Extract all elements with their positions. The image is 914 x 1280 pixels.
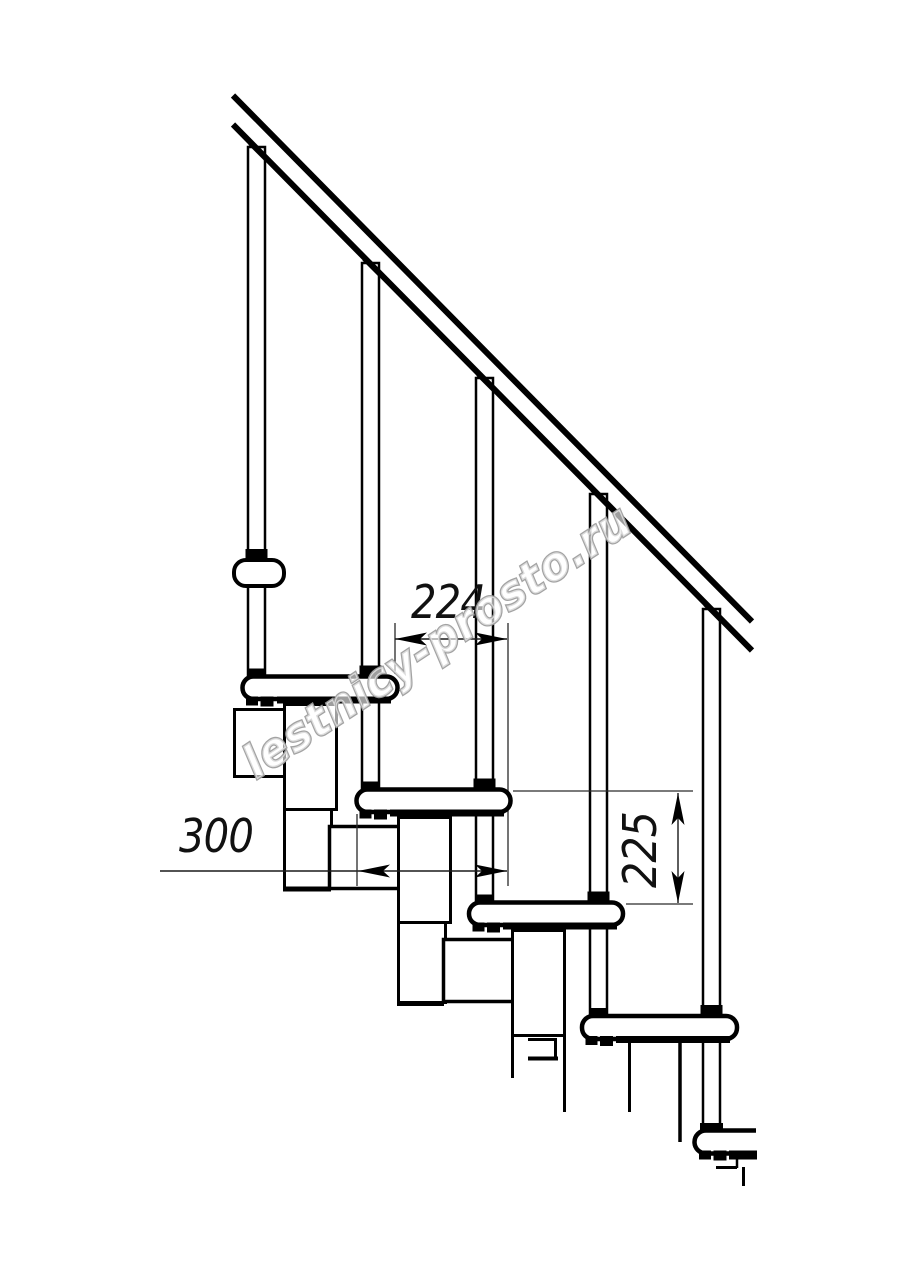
baluster-4-nut (588, 892, 610, 903)
module1-lower-box (285, 810, 332, 889)
watermark-text: lestnicy-prosto.ru (232, 493, 641, 789)
module2-connector-box (444, 940, 516, 1002)
tread-3-tab-b (487, 923, 500, 933)
tread-3 (469, 903, 623, 926)
staircase-drawing: 224 300 225 lestnicy-prosto.ru (0, 0, 914, 1280)
module2-lower-box (399, 923, 446, 1003)
tread-5-cut (695, 1131, 757, 1154)
tread-2-tab-b (374, 810, 387, 820)
baluster-5-foot (700, 1123, 723, 1132)
tread0-end-cap (234, 560, 284, 586)
module2-upper-box (399, 818, 451, 923)
tread-3-tab-a (473, 923, 485, 932)
tread-2-tab-a (360, 810, 372, 819)
baluster-4-foot (589, 1008, 608, 1016)
tread-1-tab-a (246, 697, 258, 706)
module3-upper-box (513, 931, 565, 1036)
baluster-3-nut (474, 779, 496, 790)
tread-4 (582, 1016, 737, 1039)
tread-5-lower-step-lines (716, 1159, 744, 1186)
baluster-1-shaft (248, 147, 265, 677)
baluster-5-nut (701, 1005, 723, 1016)
baluster-3-foot (475, 895, 494, 903)
dim-label-tread-depth: 300 (179, 809, 253, 863)
tread-4-underside (616, 1036, 730, 1043)
baluster-2-foot (361, 782, 380, 790)
baluster-1-nut (246, 549, 268, 560)
tread-5-tab-a (699, 1151, 711, 1160)
baluster-5-shaft (703, 609, 720, 1131)
drawing-canvas: 224 300 225 lestnicy-prosto.ru (0, 0, 914, 1280)
tread-4-tab-a (586, 1036, 598, 1045)
baluster-4-shaft (590, 494, 607, 1016)
baluster-1-foot (247, 669, 266, 677)
dim-label-riser-height: 225 (613, 812, 667, 888)
tread-5-underside (729, 1151, 757, 1160)
module1-connector-box (330, 827, 402, 889)
tread-2-underside (390, 810, 504, 817)
tread-5-tab-b (714, 1151, 727, 1161)
tread-1-tab-b (261, 697, 274, 707)
tread-3-underside (503, 923, 617, 930)
tread-4-tab-b (600, 1036, 613, 1046)
tread-2 (357, 790, 511, 813)
